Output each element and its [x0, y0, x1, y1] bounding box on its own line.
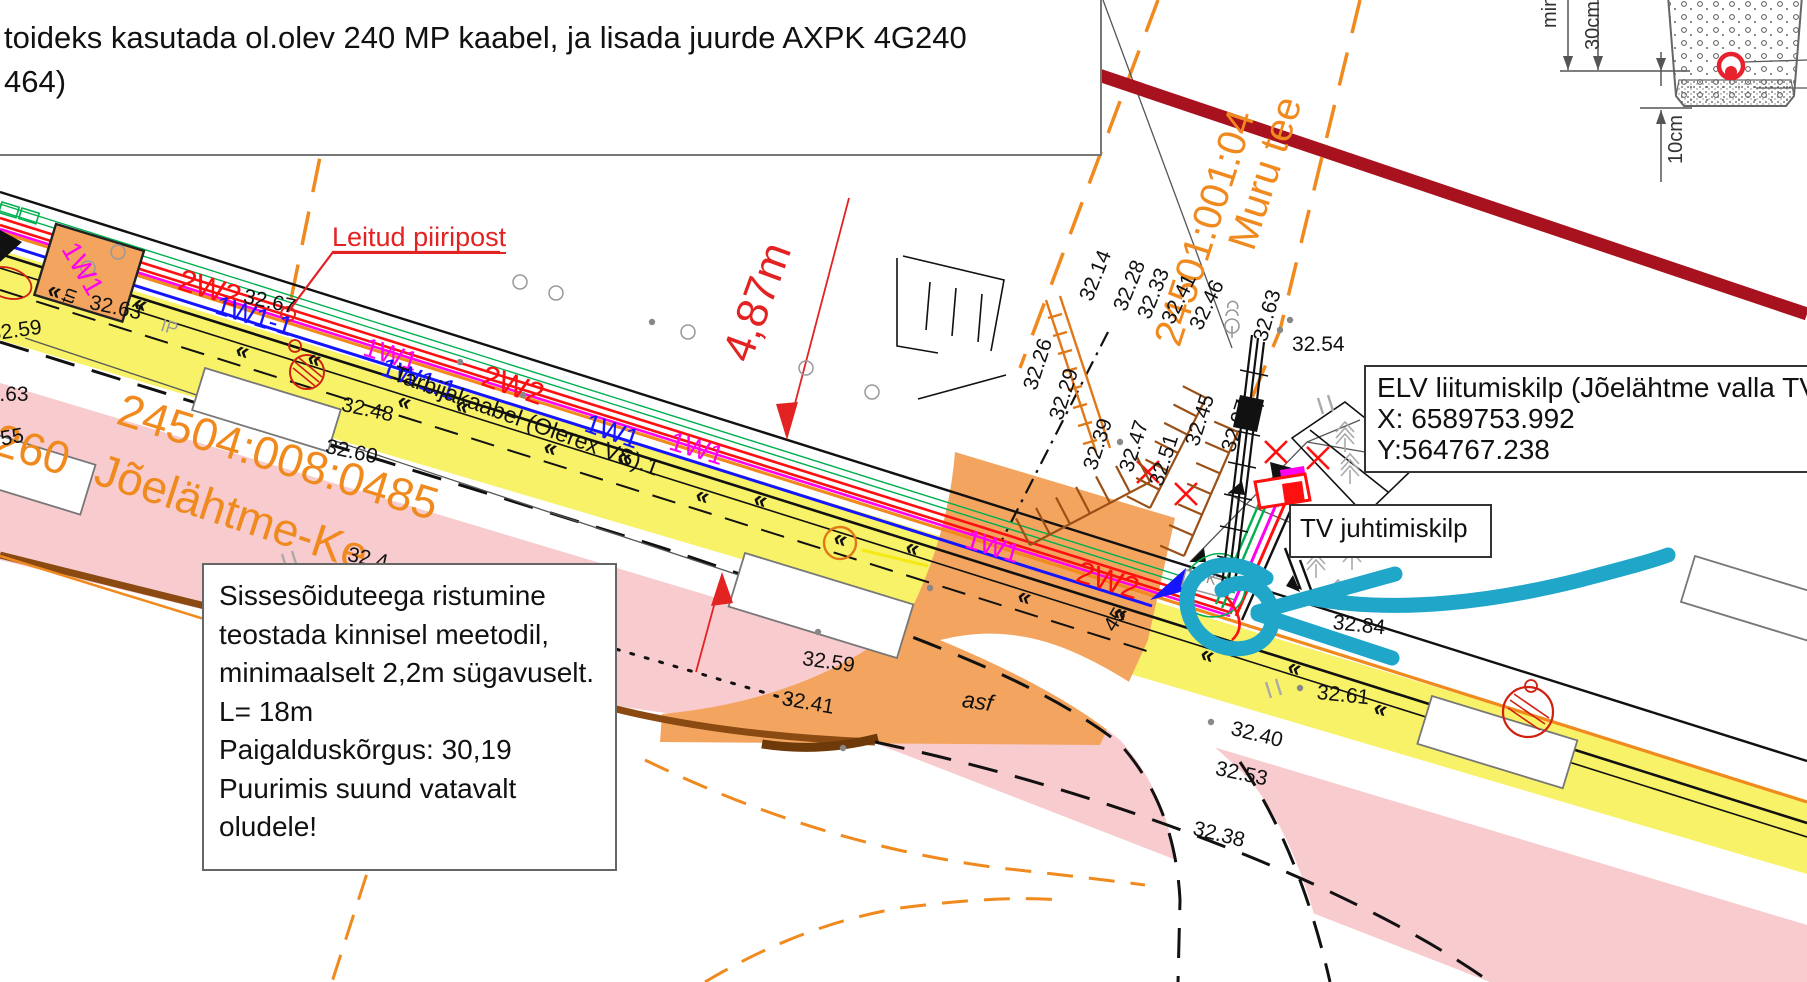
crossing-instruction-box: Sissesõiduteega ristumineteostada kinnis…	[202, 563, 617, 871]
crossing-note-line: L= 18m	[219, 693, 615, 732]
elevation-label: 32.61	[1316, 682, 1370, 708]
site-plan-canvas: 24504:008:0485Jõelähtme-Ke26024501:001:0…	[0, 0, 1807, 982]
crossing-note-line: Paigalduskõrgus: 30,19	[219, 731, 615, 770]
corridor-arrow-tick: «	[130, 289, 151, 320]
cable-circuit-label: 1W1	[962, 526, 1023, 568]
corridor-arrow-tick: «	[394, 387, 415, 418]
corridor-arrow-tick: «	[304, 344, 325, 375]
corridor-arrow-tick: «	[1014, 582, 1035, 613]
tv-control-box: TV juhtimiskilp	[1289, 504, 1492, 558]
elevation-label: 32.41	[780, 688, 835, 718]
elevation-label: 32.53	[1214, 758, 1270, 789]
crossing-note-line: oludele!	[219, 808, 615, 847]
elevation-label: 32.38	[1191, 818, 1247, 851]
tv-control-label: TV juhtimiskilp	[1300, 513, 1468, 543]
elevation-label: asf	[961, 688, 995, 715]
elevation-label: 32.63	[1250, 287, 1285, 343]
elevation-label: 32.63	[0, 384, 29, 405]
crossing-note-line: minimaalselt 2,2m sügavuselt.	[219, 654, 615, 693]
corridor-arrow-tick: «	[1284, 653, 1305, 684]
crossing-note-line: teostada kinnisel meetodil,	[219, 616, 615, 655]
corridor-arrow-tick: «	[830, 524, 851, 555]
elevation-label: 32.84	[1332, 612, 1386, 638]
elevation-label: 32.51	[1146, 432, 1182, 488]
elevation-label: 32.29	[1046, 366, 1082, 422]
cable-note-box: toideks kasutada ol.olev 240 MP kaabel, …	[0, 0, 1102, 156]
elv-x-coordinate: X: 6589753.992	[1377, 403, 1807, 434]
elevation-label: 32.14	[1076, 247, 1115, 304]
corridor-arrow-tick: «	[1370, 694, 1391, 725]
corridor-arrow-tick: «	[1197, 640, 1218, 671]
elv-y-coordinate: Y:564767.238	[1377, 434, 1807, 465]
trench-dimension-label: 10cm	[1666, 115, 1686, 164]
elevation-label: LUK	[1186, 566, 1218, 588]
elevation-label: 32.48	[340, 394, 396, 425]
elv-title: ELV liitumiskilp (Jõelähtme valla TV ta	[1377, 372, 1807, 403]
cable-circuit-label: 1W1	[666, 428, 727, 470]
corridor-arrow-tick: «	[750, 485, 771, 516]
elevation-label: 32.40	[1229, 718, 1285, 751]
trench-dimension-label: min	[1540, 0, 1560, 28]
elevation-label: 32.97	[1218, 398, 1254, 454]
elevation-label: 32.39	[1080, 416, 1116, 472]
corridor-arrow-tick: «	[232, 336, 253, 367]
elevation-label: 32.59	[801, 648, 856, 676]
dimension-487-label: 4,87m	[716, 237, 799, 367]
found-boundary-post-label: Leitud piiripost	[332, 224, 506, 254]
elevation-label: 32.54	[1292, 334, 1345, 355]
elevation-label: IP	[159, 316, 181, 338]
elevation-label: 32.45	[1182, 392, 1218, 448]
cable-note-line2: 464)	[4, 60, 1100, 104]
trench-dimension-label: 30cm	[1583, 1, 1603, 50]
corridor-arrow-tick: «	[902, 533, 923, 564]
corridor-arrow-tick: «	[692, 481, 713, 512]
cable-circuit-label: 2W2	[1073, 556, 1143, 604]
crossing-note-line: Puurimis suund vatavalt	[219, 770, 615, 809]
cable-note-line1: toideks kasutada ol.olev 240 MP kaabel, …	[4, 16, 1100, 60]
elevation-label: 32.26	[1020, 336, 1056, 392]
elv-connection-box: ELV liitumiskilp (Jõelähtme valla TV ta …	[1364, 365, 1807, 473]
crossing-note-line: Sissesõiduteega ristumine	[219, 577, 615, 616]
elevation-label: 32.47	[1116, 418, 1152, 474]
elevation-label: 32.59	[0, 317, 43, 345]
